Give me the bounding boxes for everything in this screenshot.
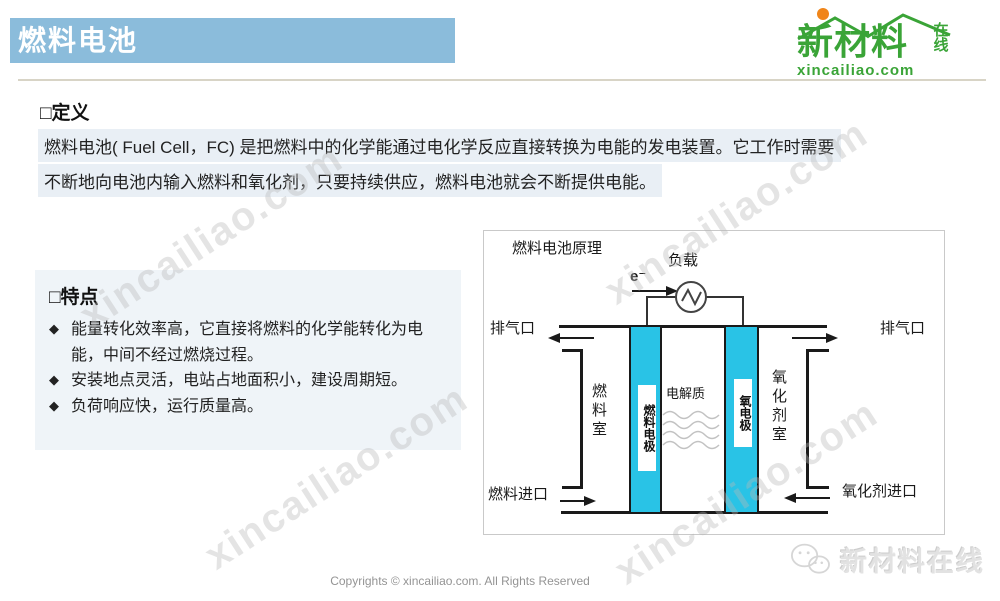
brand-suffix: 在线 xyxy=(931,22,948,52)
exhaust-left-label: 排气口 xyxy=(490,317,535,338)
features-heading: □特点 xyxy=(49,282,445,309)
fuel-inlet-arrow xyxy=(560,495,596,507)
definition-heading: □定义 xyxy=(40,98,89,125)
brand-domain: xincailiao.com xyxy=(797,62,914,79)
ghost-brand-logo: 新材料在线 xyxy=(788,540,985,579)
page-title: 燃料电池 xyxy=(10,18,455,63)
oxidant-inlet-arrow xyxy=(784,492,832,504)
brand-logo: 新材料 在线 xincailiao.com xyxy=(795,4,970,84)
fuel-electrode-label: 燃料电极 xyxy=(638,385,656,471)
feature-item: ◆ 安装地点灵活，电站占地面积小，建设周期短。 xyxy=(49,368,445,394)
oxygen-electrode-bar: 氧电极 xyxy=(724,327,759,512)
feature-item: ◆ 负荷响应快，运行质量高。 xyxy=(49,394,445,420)
oxidant-inlet-label: 氧化剂进口 xyxy=(842,480,917,501)
oxidant-chamber-label: 氧化剂室 xyxy=(768,369,789,445)
diamond-bullet-icon: ◆ xyxy=(49,317,71,368)
left-wall-bottom-stub xyxy=(562,486,583,489)
feature-item: ◆ 能量转化效率高，它直接将燃料的化学能转化为电能，中间不经过燃烧过程。 xyxy=(49,317,445,368)
oxygen-electrode-label: 氧电极 xyxy=(734,379,752,447)
circuit-wire-left xyxy=(646,296,648,327)
brand-name: 新材料 xyxy=(797,24,908,60)
diagram-title: 燃料电池原理 xyxy=(512,237,602,258)
diamond-bullet-icon: ◆ xyxy=(49,368,71,394)
ghost-brand-text: 新材料在线 xyxy=(840,540,985,579)
exhaust-right-label: 排气口 xyxy=(880,317,925,338)
feature-item-text: 负荷响应快，运行质量高。 xyxy=(71,394,263,420)
right-chamber-wall xyxy=(806,349,809,489)
electrolyte-label: 电解质 xyxy=(666,383,705,402)
copyright-text: Copyrights © xincailiao.com. All Rights … xyxy=(250,574,670,588)
load-symbol-icon xyxy=(674,280,708,314)
circuit-wire-right xyxy=(742,296,744,327)
left-chamber-wall xyxy=(580,349,583,489)
fuel-chamber-label: 燃料室 xyxy=(588,383,609,440)
cell-bottom-plate xyxy=(561,511,828,514)
feature-item-text: 能量转化效率高，它直接将燃料的化学能转化为电能，中间不经过燃烧过程。 xyxy=(71,317,445,368)
definition-text-line2: 不断地向电池内输入燃料和氧化剂，只要持续供应，燃料电池就会不断提供电能。 xyxy=(38,164,662,197)
electron-label: e⁻ xyxy=(630,267,646,285)
wechat-icon xyxy=(788,541,832,579)
fuel-cell-diagram: 燃料电池原理 负载 e⁻ 排气口 排气口 燃料电极 氧电极 燃料室 氧化剂室 电… xyxy=(483,230,945,535)
electrolyte-waves-icon xyxy=(661,407,725,453)
right-wall-top-stub xyxy=(808,349,829,352)
feature-item-text: 安装地点灵活，电站占地面积小，建设周期短。 xyxy=(71,368,407,394)
features-list: ◆ 能量转化效率高，它直接将燃料的化学能转化为电能，中间不经过燃烧过程。 ◆ 安… xyxy=(49,317,445,419)
exhaust-left-arrow xyxy=(548,332,596,344)
exhaust-right-arrow xyxy=(790,332,838,344)
load-label: 负载 xyxy=(668,249,698,270)
fuel-electrode-bar: 燃料电极 xyxy=(629,327,662,512)
diamond-bullet-icon: ◆ xyxy=(49,394,71,420)
right-wall-bottom-stub xyxy=(808,486,829,489)
features-box: □特点 ◆ 能量转化效率高，它直接将燃料的化学能转化为电能，中间不经过燃烧过程。… xyxy=(35,270,461,450)
definition-text-line1: 燃料电池( Fuel Cell，FC) 是把燃料中的化学能通过电化学反应直接转换… xyxy=(38,129,841,162)
fuel-inlet-label: 燃料进口 xyxy=(488,483,548,504)
cell-top-plate xyxy=(559,325,827,328)
left-wall-top-stub xyxy=(562,349,583,352)
